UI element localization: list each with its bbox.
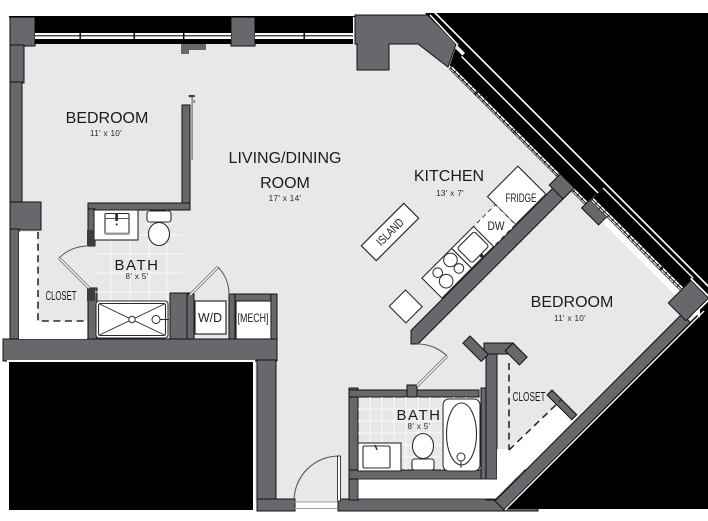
svg-text:17' x 14': 17' x 14' (269, 194, 302, 203)
svg-text:FRIDGE: FRIDGE (506, 191, 537, 205)
svg-text:11' x 10': 11' x 10' (554, 314, 586, 323)
svg-text:KITCHEN: KITCHEN (414, 168, 484, 185)
svg-text:CLOSET: CLOSET (46, 289, 77, 303)
svg-text:DW: DW (488, 219, 506, 233)
svg-text:ROOM: ROOM (260, 175, 310, 192)
svg-text:13' x 7': 13' x 7' (436, 189, 464, 198)
svg-text:[MECH]: [MECH] (238, 311, 269, 325)
svg-text:LIVING/DINING: LIVING/DINING (229, 150, 342, 167)
svg-text:8' x 5': 8' x 5' (126, 272, 149, 281)
svg-text:11' x 10': 11' x 10' (90, 129, 122, 138)
svg-text:CLOSET: CLOSET (513, 390, 546, 404)
svg-text:BEDROOM: BEDROOM (531, 294, 614, 311)
svg-text:W/D: W/D (198, 311, 222, 325)
svg-text:8' x 5': 8' x 5' (408, 422, 431, 431)
svg-text:BEDROOM: BEDROOM (66, 110, 149, 127)
